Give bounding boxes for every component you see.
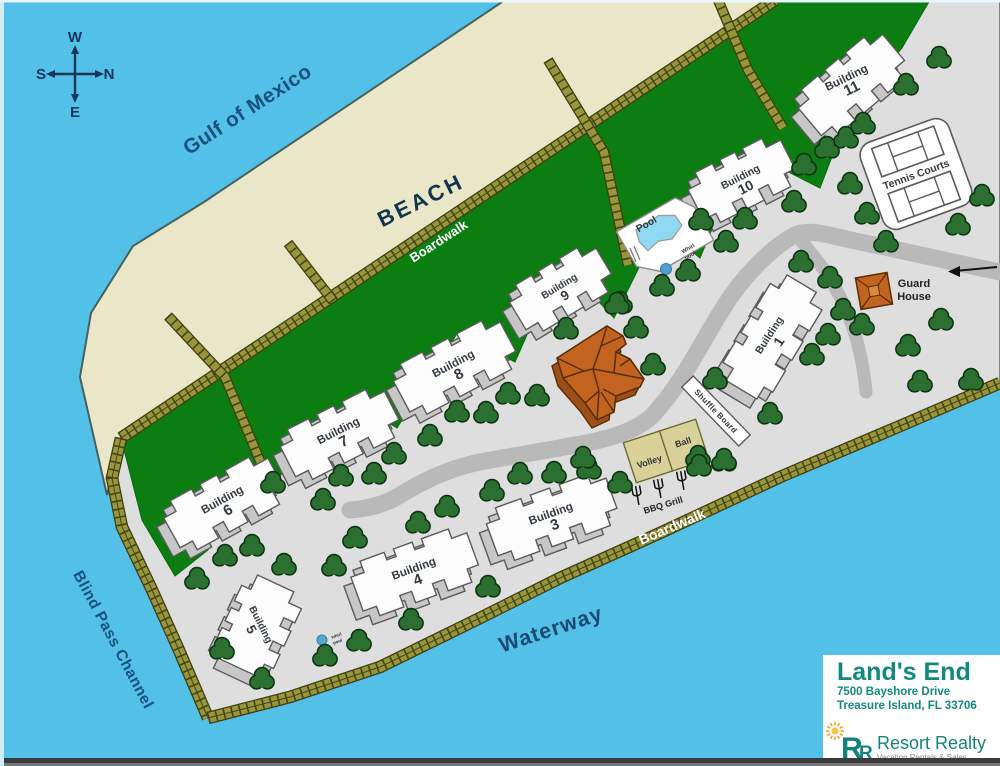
svg-text:W: W bbox=[68, 29, 83, 46]
svg-text:7500 Bayshore Drive: 7500 Bayshore Drive bbox=[837, 686, 950, 698]
svg-text:N: N bbox=[104, 66, 115, 83]
svg-text:House: House bbox=[897, 291, 931, 303]
svg-text:Treasure Island, FL 33706: Treasure Island, FL 33706 bbox=[837, 700, 977, 712]
svg-text:S: S bbox=[36, 66, 46, 83]
svg-text:Land's End: Land's End bbox=[837, 658, 971, 686]
svg-text:Guard: Guard bbox=[898, 278, 930, 290]
svg-text:Resort Realty: Resort Realty bbox=[877, 733, 986, 753]
svg-text:E: E bbox=[70, 104, 80, 121]
